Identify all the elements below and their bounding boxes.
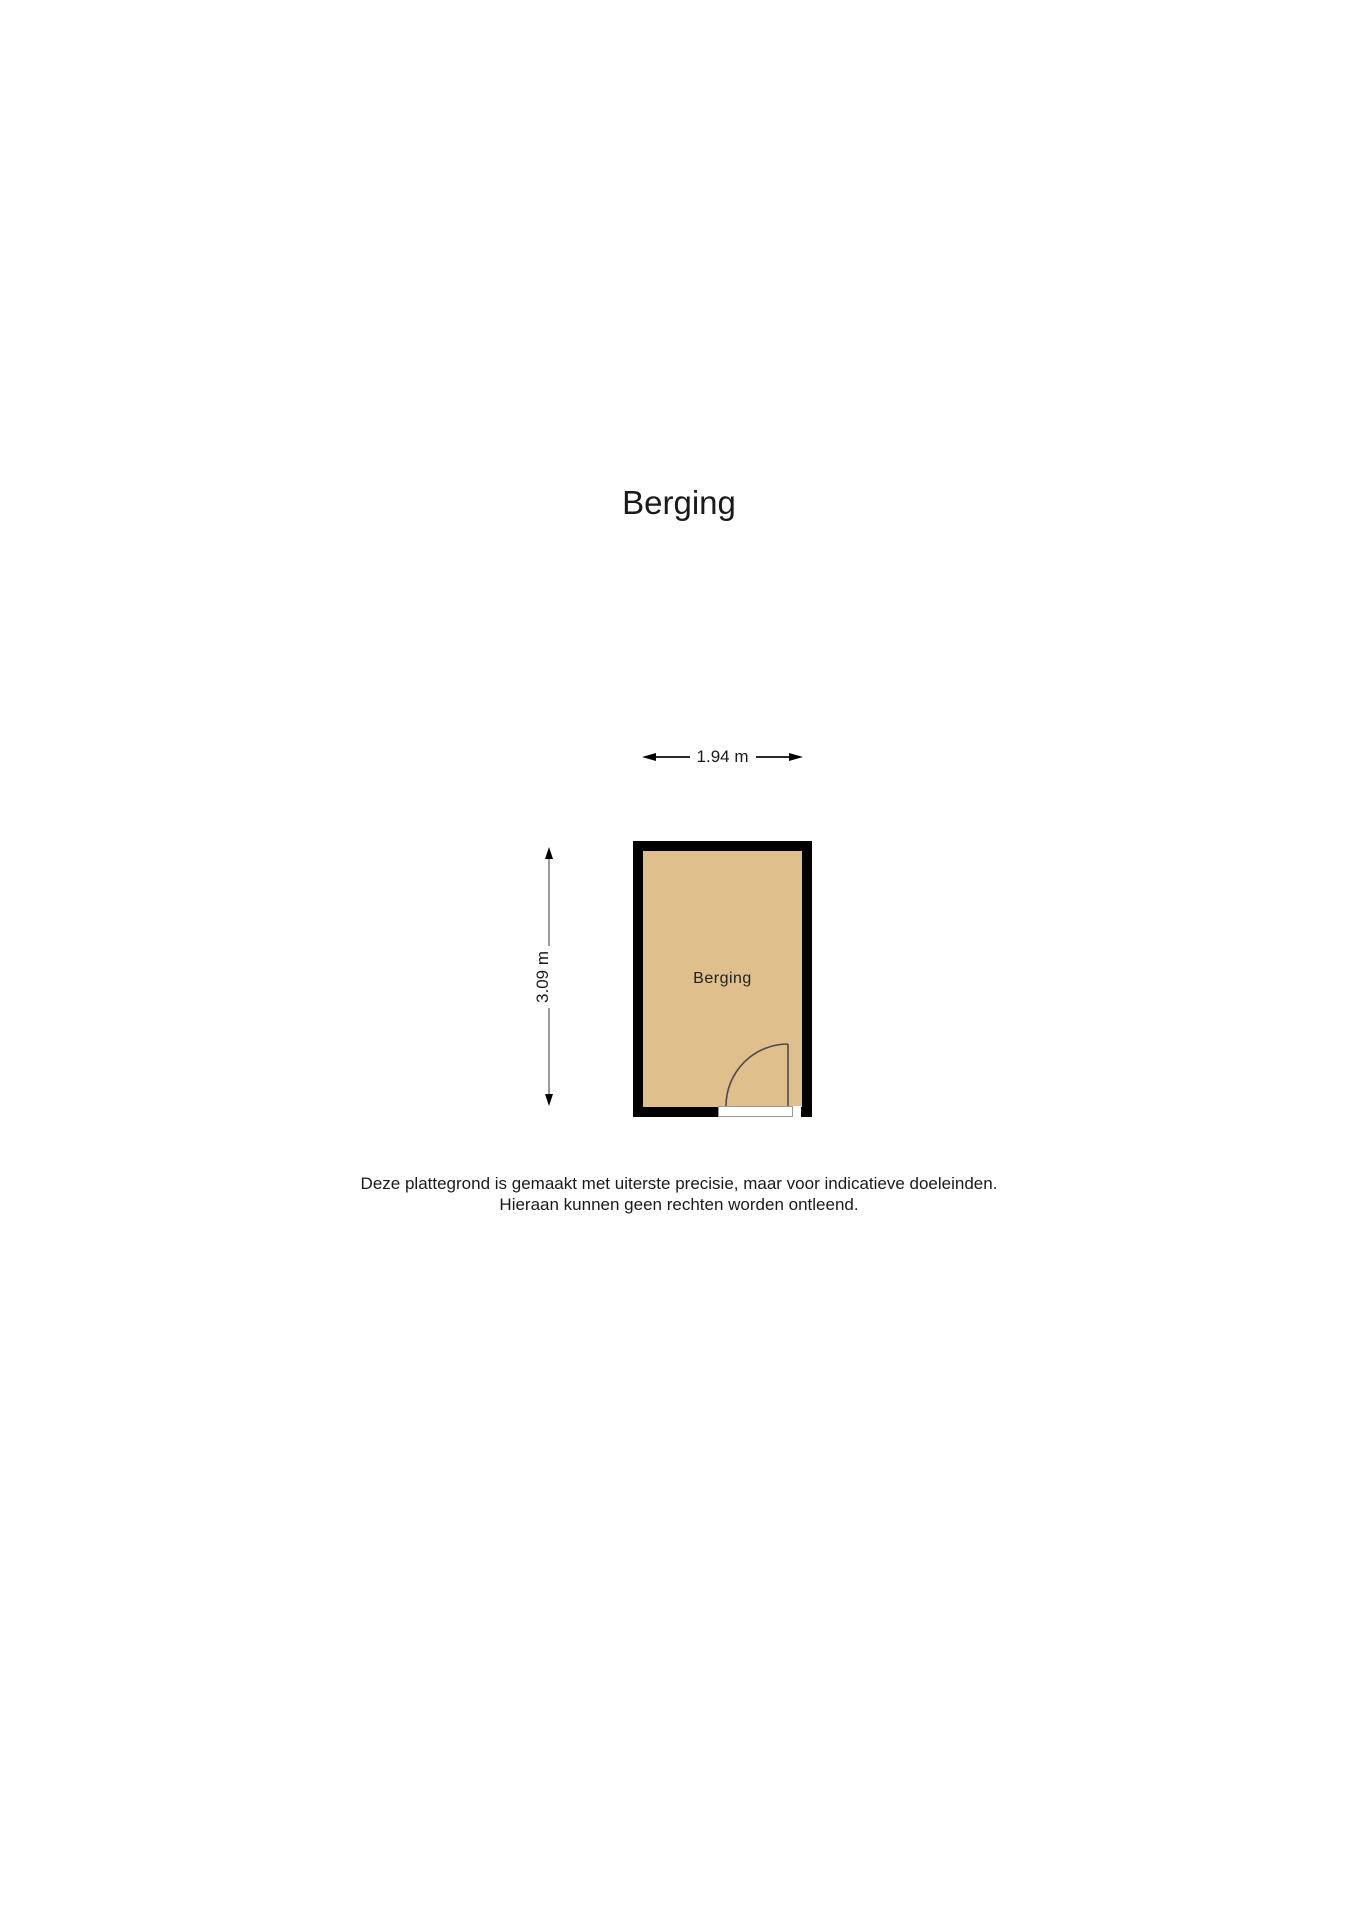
dimension-line-segment (656, 756, 690, 758)
floorplan-page: Berging 1.94 m 3.09 m Berging Deze platt… (0, 0, 1358, 1920)
dimension-line-segment (548, 1008, 550, 1095)
arrow-right-icon (789, 753, 803, 761)
arrow-left-icon (642, 753, 656, 761)
dimension-line-segment (548, 859, 550, 946)
dimension-line-segment (756, 756, 790, 758)
door-threshold (718, 1106, 801, 1117)
door-threshold-rail (718, 1106, 793, 1117)
door-swing-icon (725, 1043, 791, 1108)
room-label: Berging (693, 970, 752, 988)
disclaimer-line-2: Hieraan kunnen geen rechten worden ontle… (0, 1194, 1358, 1215)
arrow-up-icon (545, 847, 553, 859)
disclaimer: Deze plattegrond is gemaakt met uiterste… (0, 1173, 1358, 1215)
page-title: Berging (0, 483, 1358, 523)
width-dimension: 1.94 m (642, 749, 803, 765)
width-dimension-label: 1.94 m (697, 747, 749, 767)
disclaimer-line-1: Deze plattegrond is gemaakt met uiterste… (0, 1173, 1358, 1194)
arrow-down-icon (545, 1094, 553, 1106)
room-berging: Berging (633, 841, 812, 1117)
height-dimension: 3.09 m (538, 847, 560, 1106)
height-dimension-label: 3.09 m (533, 951, 553, 1003)
